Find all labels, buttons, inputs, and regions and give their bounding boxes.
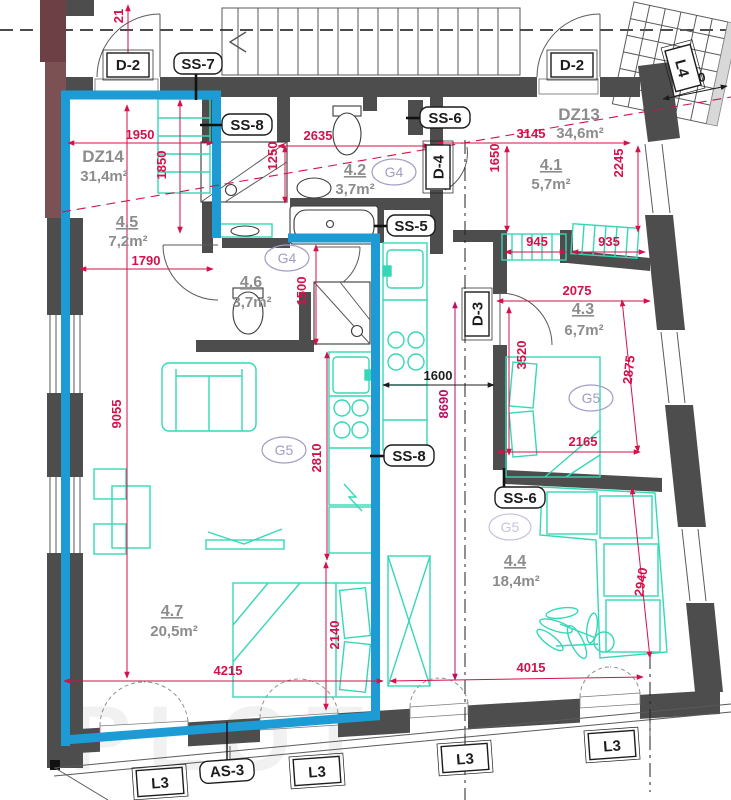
bed-living	[233, 583, 375, 697]
tag-ss5: SS-5	[387, 215, 435, 236]
dim-3145: 3145	[517, 126, 546, 141]
room-41-area: 5,7m²	[531, 176, 570, 193]
unit-dz13-id: DZ13	[558, 105, 600, 124]
dim-1650: 1650	[487, 144, 502, 173]
dim-2140: 2140	[327, 621, 342, 650]
tv-console	[206, 529, 284, 549]
svg-text:SS-6: SS-6	[428, 110, 461, 127]
washbasin	[297, 178, 331, 198]
svg-text:SS-6: SS-6	[503, 490, 536, 507]
dim-2940: 2940	[631, 566, 650, 597]
dim-21: 21	[111, 9, 126, 23]
group-g5-3: G5	[501, 519, 520, 535]
dim-1950: 1950	[126, 127, 155, 142]
room-42-num: 4.2	[344, 162, 366, 179]
unit-dz14-id: DZ14	[82, 147, 124, 166]
room-43-num: 4.3	[572, 301, 594, 318]
dim-2875: 2875	[620, 355, 638, 385]
dim-1500: 1500	[294, 277, 309, 306]
kitchen-left	[329, 352, 373, 553]
unit-dz14-area: 31,4m²	[80, 168, 128, 185]
dining-table	[94, 469, 150, 554]
tag-d3: D-3	[462, 288, 492, 340]
room-46-num: 4.6	[240, 274, 262, 291]
dim-9055: 9055	[109, 400, 124, 429]
dim-8690: 8690	[436, 390, 451, 419]
walls	[40, 0, 723, 800]
svg-text:L3: L3	[151, 774, 170, 792]
shower-tray-2	[314, 282, 370, 344]
tag-l3-4: L3	[584, 727, 640, 763]
tag-ss7: SS-7	[174, 53, 222, 74]
svg-text:L3: L3	[456, 750, 475, 768]
tag-ss8-mid: SS-8	[384, 445, 434, 466]
svg-text:L3: L3	[603, 737, 622, 755]
wardrobe-right	[388, 556, 430, 686]
staircase	[222, 8, 520, 75]
dim-1850: 1850	[154, 151, 169, 180]
group-g4: G4	[385, 164, 404, 180]
group-g5-2: G5	[582, 390, 601, 406]
vanity-basin	[218, 224, 272, 237]
tag-d2-right: D-2	[547, 50, 597, 80]
svg-text:D-4: D-4	[431, 154, 448, 179]
dim-2245: 2245	[611, 149, 626, 178]
tag-d2-left: D-2	[103, 50, 153, 80]
plant	[534, 606, 614, 661]
tag-ss8-top: SS-8	[222, 114, 272, 135]
dim-2635: 2635	[304, 128, 333, 143]
tag-ss6-top: SS-6	[420, 107, 470, 128]
dim-2165: 2165	[569, 434, 598, 449]
sofa	[162, 363, 256, 431]
toilet	[333, 106, 361, 155]
floor-plan: PLOT	[0, 0, 731, 800]
svg-text:D-3: D-3	[470, 302, 487, 326]
room-42-area: 3,7m²	[335, 181, 374, 198]
bed-bedroom	[506, 357, 600, 477]
room-45-num: 4.5	[116, 214, 138, 231]
tag-l3-3: L3	[437, 740, 493, 776]
dim-3520: 3520	[514, 341, 529, 370]
dim-1250: 1250	[265, 142, 280, 171]
group-g4-2: G4	[278, 250, 297, 266]
svg-text:D-2: D-2	[560, 57, 584, 74]
dim-935: 935	[598, 234, 620, 249]
dim-4215: 4215	[214, 663, 243, 678]
unit-dz13-area: 34,6m²	[556, 125, 604, 142]
dim-945: 945	[526, 234, 548, 249]
svg-text:SS-8: SS-8	[230, 117, 263, 134]
dim-4015: 4015	[517, 660, 546, 675]
room-43-area: 6,7m²	[564, 322, 603, 339]
kitchen-right	[383, 243, 427, 450]
svg-text:D-2: D-2	[116, 57, 140, 74]
svg-text:AS-3: AS-3	[209, 762, 244, 781]
room-47-area: 20,5m²	[150, 623, 198, 640]
room-47-num: 4.7	[161, 603, 183, 620]
svg-text:SS-5: SS-5	[394, 218, 427, 235]
room-44-num: 4.4	[504, 553, 526, 570]
dim-1790: 1790	[132, 253, 161, 268]
svg-text:SS-7: SS-7	[181, 56, 214, 73]
room-46-area: 3,7m²	[232, 294, 271, 311]
group-g5: G5	[275, 442, 294, 458]
dim-1600: 1600	[424, 368, 453, 383]
room-41-num: 4.1	[540, 157, 562, 174]
tag-ss6-bottom: SS-6	[495, 487, 545, 508]
room-labels: DZ14 31,4m² DZ13 34,6m² 4.5 7,2m² 4.2 3,…	[80, 105, 604, 640]
svg-text:L3: L3	[308, 763, 327, 781]
dim-2810: 2810	[309, 444, 324, 473]
room-44-area: 18,4m²	[492, 573, 540, 590]
tag-d4: D-4	[423, 141, 453, 193]
dim-2075: 2075	[563, 283, 592, 298]
tag-as3: AS-3	[199, 758, 254, 784]
svg-text:SS-8: SS-8	[392, 448, 425, 465]
room-45-area: 7,2m²	[108, 233, 147, 250]
